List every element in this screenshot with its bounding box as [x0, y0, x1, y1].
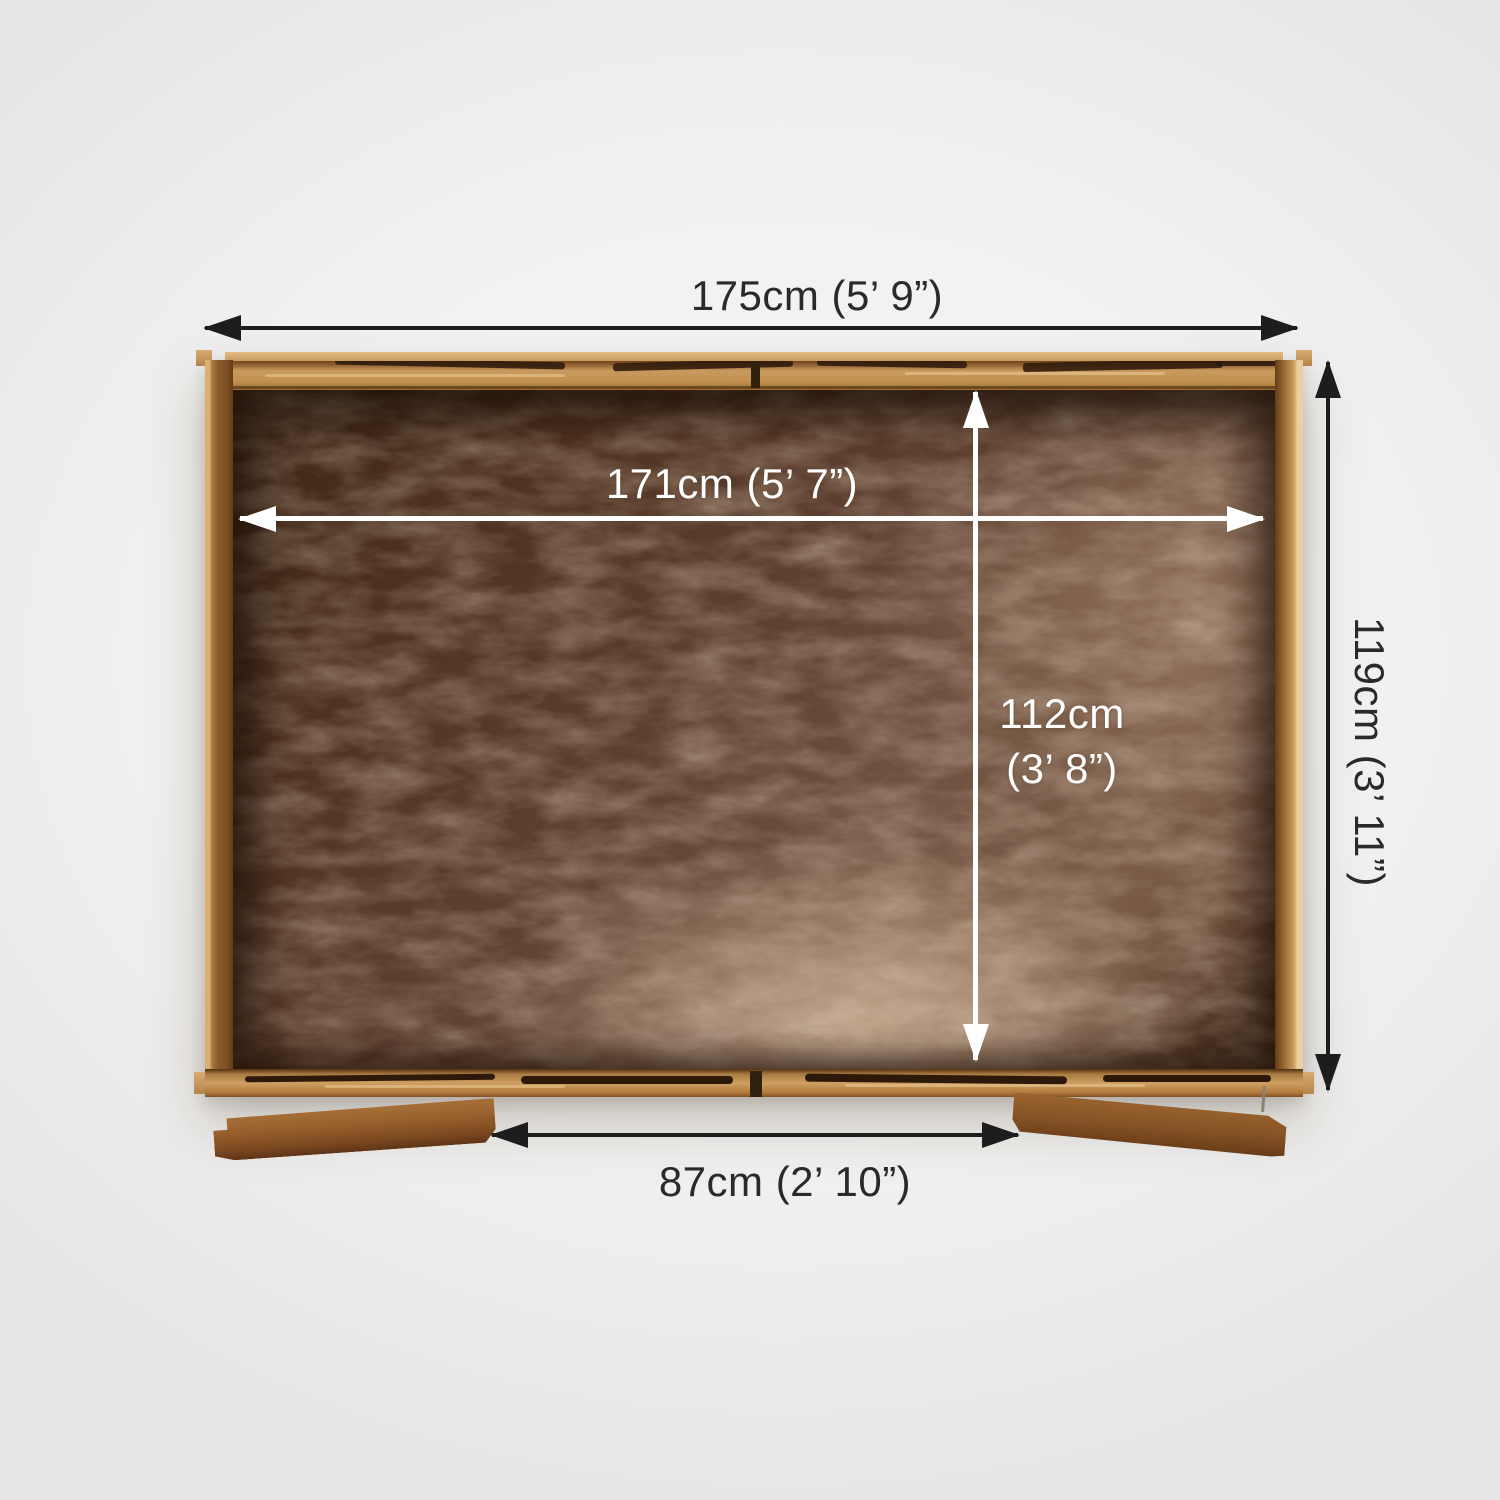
plank-gap	[245, 1074, 495, 1083]
plank-seam	[1023, 360, 1223, 372]
internal-depth-value: 112cm	[999, 686, 1124, 741]
shed-left-wall	[205, 360, 233, 1097]
wall-shadow-line	[205, 386, 1303, 389]
left-door-panel	[212, 1098, 496, 1162]
door-center-joint	[750, 1071, 762, 1097]
internal-depth-arrow	[973, 392, 978, 1060]
shed-right-wall	[1275, 360, 1303, 1097]
internal-width-arrow	[240, 516, 1263, 521]
arrowhead-left	[203, 315, 241, 341]
arrowhead-left	[490, 1122, 528, 1148]
product-dimension-diagram: 175cm (5’ 9”) 119cm (3’ 11”) 171cm (5’ 7…	[0, 0, 1500, 1500]
arrowhead-down	[1315, 1054, 1341, 1092]
arrowhead-right	[1227, 506, 1265, 532]
back-wall-top-plate	[225, 352, 1283, 361]
internal-width-label: 171cm (5’ 7”)	[606, 460, 858, 507]
arrowhead-up	[963, 390, 989, 428]
plank-gap	[805, 1074, 1067, 1085]
arrowhead-right	[982, 1122, 1020, 1148]
door-hinge-pin	[1261, 1086, 1266, 1112]
arrowhead-left	[238, 506, 276, 532]
plank-gap	[1103, 1075, 1271, 1082]
door-width-label: 87cm (2’ 10”)	[659, 1158, 911, 1205]
internal-depth-label: 112cm (3’ 8”)	[999, 686, 1124, 796]
plank-seam	[817, 360, 967, 368]
arrowhead-up	[1315, 360, 1341, 398]
wood-highlight	[845, 1084, 1145, 1087]
external-depth-label: 119cm (3’ 11”)	[1346, 617, 1393, 887]
wall-center-joint	[751, 362, 760, 388]
arrowhead-down	[963, 1024, 989, 1062]
internal-depth-imperial: (3’ 8”)	[999, 741, 1124, 796]
plank-seam	[613, 360, 793, 371]
plank-gap	[521, 1076, 733, 1084]
arrowhead-right	[1261, 315, 1299, 341]
plank-seam	[335, 360, 565, 369]
external-depth-arrow	[1326, 362, 1330, 1090]
wood-highlight	[265, 374, 565, 377]
wood-highlight	[325, 1085, 565, 1088]
shed-back-wall	[205, 360, 1303, 390]
external-width-label: 175cm (5’ 9”)	[691, 272, 943, 319]
external-width-arrow	[205, 326, 1297, 330]
right-door-panel	[1011, 1092, 1288, 1158]
shed-front-wall	[205, 1069, 1303, 1097]
door-width-arrow	[492, 1133, 1018, 1137]
wood-highlight	[905, 372, 1165, 375]
